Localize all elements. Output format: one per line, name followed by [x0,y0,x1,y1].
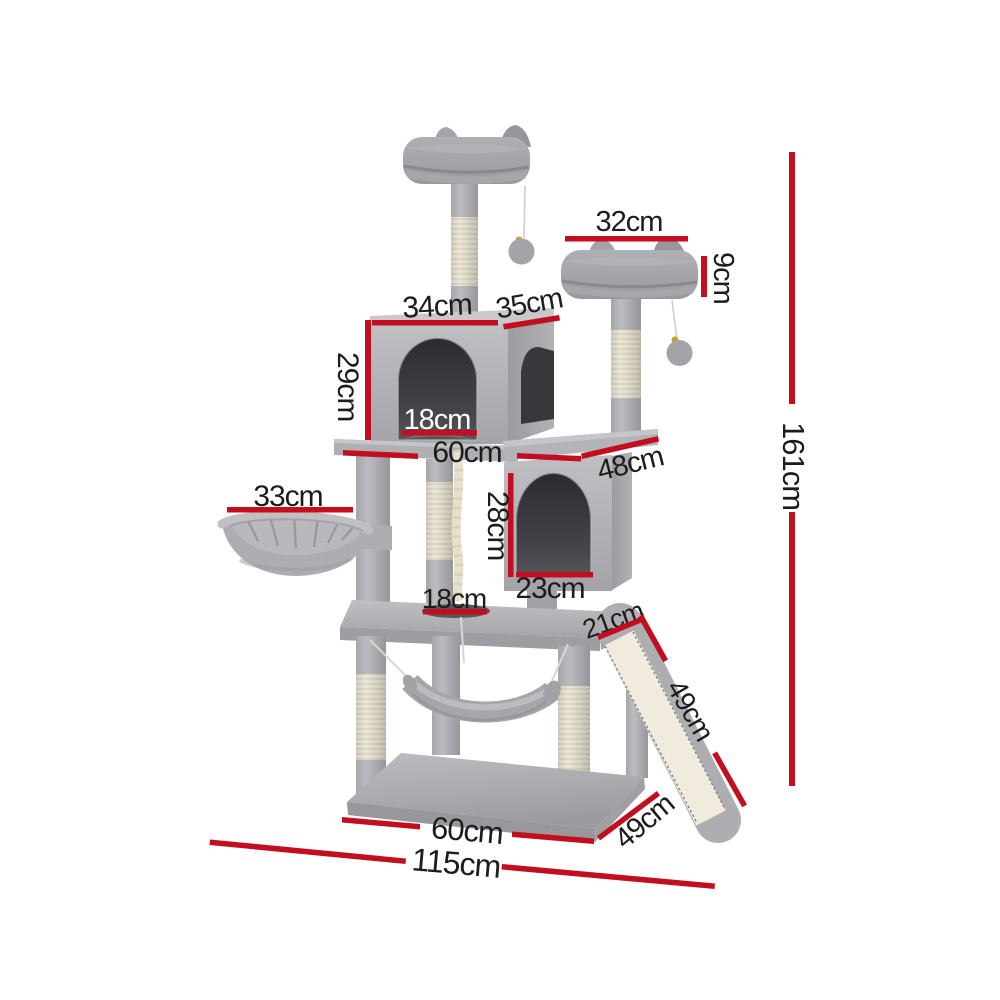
svg-text:115cm: 115cm [410,841,501,885]
svg-text:161cm: 161cm [776,422,811,510]
svg-text:34cm: 34cm [402,288,473,325]
svg-text:9cm: 9cm [707,252,739,304]
svg-text:60cm: 60cm [432,436,501,469]
svg-text:28cm: 28cm [481,491,514,560]
svg-text:29cm: 29cm [331,352,364,421]
svg-text:33cm: 33cm [253,480,322,513]
svg-text:23cm: 23cm [515,572,584,605]
svg-text:32cm: 32cm [596,206,663,238]
